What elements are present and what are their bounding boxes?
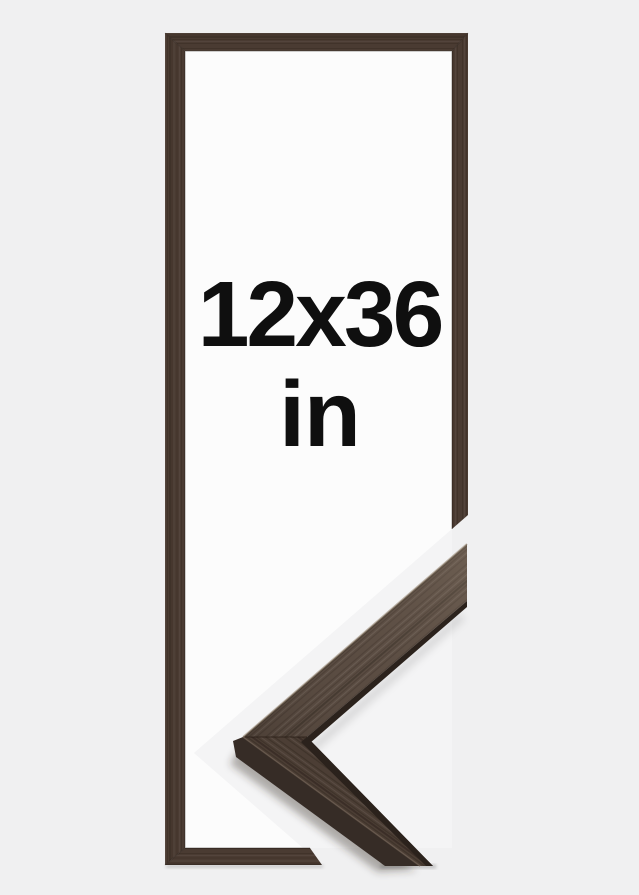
frame-photo (0, 0, 639, 895)
frame-border-left (165, 33, 185, 865)
frame-border-bottom (165, 848, 322, 865)
frame-product-image: 12x36 in (0, 0, 639, 895)
frame-border-right (452, 33, 468, 529)
frame-border-top (165, 33, 468, 51)
frame-contact-shadow (166, 865, 323, 869)
